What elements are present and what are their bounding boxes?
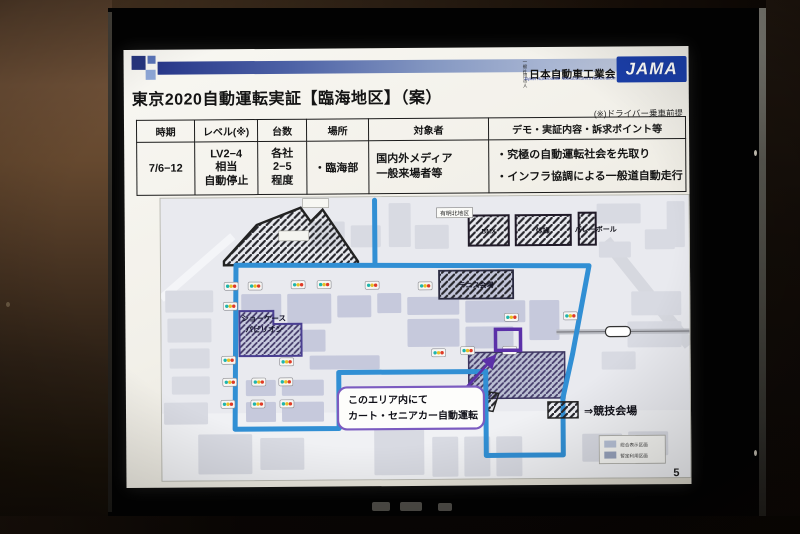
venue-label-gymnastics: 体操 — [536, 226, 551, 235]
map-label-box — [279, 231, 309, 241]
tennis-venue-label: テニス会場 — [459, 280, 494, 289]
city-block — [667, 201, 685, 247]
pavilion-label-line1: ショーケース — [241, 314, 286, 323]
cell-demo-points: ・究極の自動運転社会を先取り ・インフラ協調による一般道自動走行 — [489, 139, 686, 193]
city-block — [167, 318, 211, 342]
traffic-signal-icon — [461, 347, 475, 355]
traffic-signal-icon — [221, 400, 235, 408]
wall-bottom — [0, 516, 800, 534]
callout-line2: カート・セニアカー自動運転 — [348, 409, 478, 423]
traffic-signal-icon — [280, 400, 294, 408]
waterfront-area-map: BMX 体操 バレーボール 有明北地区 テニス会場 ショーケース パビリオン — [160, 194, 692, 482]
wall-left — [0, 0, 112, 534]
traffic-signal-icon — [432, 349, 446, 357]
traffic-signal-icon — [504, 313, 518, 321]
col-header-demo: デモ・実証内容・訴求ポイント等 — [488, 117, 685, 140]
traffic-signal-icon — [224, 282, 238, 290]
mini-legend-swatch-1 — [604, 441, 616, 448]
jama-logo: JAMA — [617, 56, 687, 82]
display-screen: 一般 社団法人 日本自動車工業会 Japan Automobile Manufa… — [108, 8, 766, 516]
page-number: 5 — [673, 467, 679, 479]
city-block — [597, 203, 641, 223]
traffic-signal-icon — [317, 281, 331, 289]
city-block — [164, 402, 208, 424]
city-block — [287, 294, 331, 324]
jama-org-name-english: Japan Automobile Manufacturers Associati… — [524, 76, 616, 82]
cell-audience: 国内外メディア 一般来場者等 — [369, 140, 489, 194]
jama-org-prefix: 一般 社団法人 — [523, 60, 528, 89]
venue-label-bmx: BMX — [482, 228, 497, 235]
city-block — [260, 438, 304, 470]
slide-title: 東京2020自動運転実証【臨海地区】（案） — [132, 84, 442, 110]
map-label-box — [303, 199, 329, 208]
traffic-signal-icon — [280, 358, 294, 366]
deco-square-icon — [132, 56, 146, 70]
presentation-slide: 一般 社団法人 日本自動車工業会 Japan Automobile Manufa… — [123, 46, 691, 488]
screen-connector — [372, 502, 390, 511]
cell-units: 各社 2−5 程度 — [258, 141, 307, 194]
callout-bubble — [338, 386, 484, 429]
deco-square-icon — [146, 70, 156, 80]
city-block — [602, 351, 636, 369]
traffic-signal-icon — [563, 312, 577, 320]
cell-period: 7/6−12 — [137, 142, 195, 195]
city-block — [337, 295, 371, 317]
traffic-signal-icon — [252, 378, 266, 386]
city-block — [599, 241, 631, 257]
wall-highlight — [6, 302, 10, 307]
city-block — [631, 291, 681, 315]
jama-org-name: 一般 社団法人 日本自動車工業会 — [532, 60, 616, 89]
bezel-reflection — [754, 450, 757, 456]
city-block — [407, 319, 459, 347]
screen-connector — [400, 502, 422, 511]
traffic-signal-icon — [223, 302, 237, 310]
traffic-signal-icon — [251, 400, 265, 408]
legend-venue-label: ⇒競技会場 — [584, 403, 637, 417]
cell-level: LV2−4 相当 自動停止 — [195, 142, 258, 195]
traffic-signal-icon — [223, 378, 237, 386]
mini-legend-box — [599, 435, 665, 463]
city-block — [377, 293, 401, 313]
callout-line1: このエリア内にて — [348, 393, 428, 407]
deco-square-icon — [148, 56, 156, 64]
traffic-signal-icon — [222, 356, 236, 364]
city-block — [389, 203, 411, 247]
traffic-signal-icon — [279, 378, 293, 386]
mini-legend-swatch-2 — [604, 452, 616, 459]
col-header-units: 台数 — [257, 119, 306, 141]
table-row: 7/6−12 LV2−4 相当 自動停止 各社 2−5 程度 ・臨海部 国内外メ… — [137, 139, 686, 196]
city-block — [172, 376, 210, 394]
traffic-signal-icon — [248, 282, 262, 290]
venue-label-volleyball: バレーボール — [575, 225, 617, 234]
station-icon — [605, 326, 630, 336]
cell-place: ・臨海部 — [307, 141, 369, 194]
screen-bezel-left — [108, 12, 112, 512]
city-block — [165, 290, 213, 312]
screen-bezel-right — [759, 8, 766, 516]
col-header-place: 場所 — [306, 119, 368, 141]
col-header-level: レベル(※) — [194, 120, 257, 142]
traffic-signal-icon — [291, 281, 305, 289]
district-label: 有明北地区 — [440, 209, 469, 217]
bezel-reflection — [754, 150, 757, 156]
demo-plan-table: 時期 レベル(※) 台数 場所 対象者 デモ・実証内容・訴求ポイント等 7/6−… — [136, 116, 687, 196]
legend-hatch-swatch — [548, 402, 578, 418]
city-block — [529, 300, 559, 340]
col-header-period: 時期 — [136, 120, 194, 142]
city-block — [415, 225, 449, 249]
conference-room-photo: 一般 社団法人 日本自動車工業会 Japan Automobile Manufa… — [0, 0, 800, 534]
city-block — [627, 321, 681, 347]
pavilion-label-line2: パビリオン — [245, 324, 283, 334]
traffic-signal-icon — [418, 282, 432, 290]
city-block — [310, 355, 380, 369]
city-block — [432, 437, 458, 477]
screen-connector — [438, 503, 452, 511]
city-block — [198, 434, 252, 474]
wall-right — [766, 0, 800, 534]
city-block — [170, 348, 210, 368]
city-block — [374, 429, 424, 475]
traffic-signal-icon — [365, 281, 379, 289]
col-header-audience: 対象者 — [368, 118, 488, 141]
